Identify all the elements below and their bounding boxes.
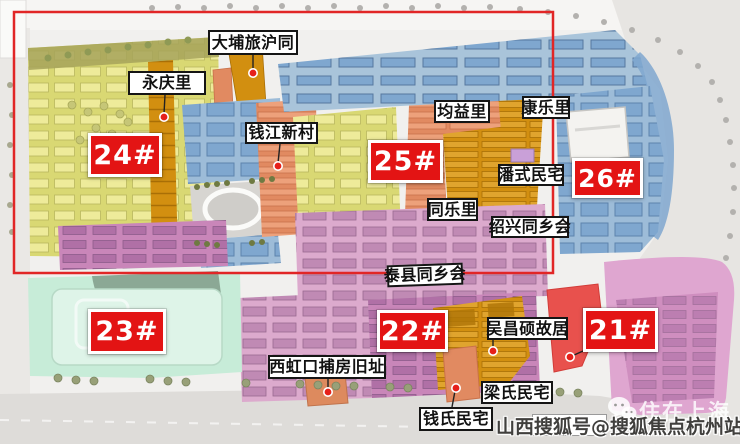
area-label-taixian-tongxianghui: 泰县同乡会 bbox=[387, 263, 464, 288]
pink-strip-under-24 bbox=[58, 220, 228, 270]
area-label-yongqingli: 永庆里 bbox=[128, 71, 206, 95]
area-label-qianjiang-xincun: 钱江新村 bbox=[245, 122, 318, 144]
area-label-shaoxing-tongxianghui: 绍兴同乡会 bbox=[491, 216, 569, 238]
area-label-tongleli: 同乐里 bbox=[427, 198, 478, 221]
block-badge-26: 26# bbox=[572, 158, 643, 198]
panshi-building bbox=[511, 149, 534, 162]
area-label-liangshi-minzhai: 梁氏民宅 bbox=[481, 381, 553, 404]
watermark-account: 山西搜狐号@搜狐焦点杭州站 bbox=[496, 412, 740, 439]
area-label-kangleli: 康乐里 bbox=[522, 96, 570, 119]
area-label-junyili: 均益里 bbox=[434, 100, 490, 123]
amber-roof-1 bbox=[444, 309, 475, 327]
area-label-xihongkou-bufang-jiuzhi: 西虹口捕房旧址 bbox=[268, 355, 386, 379]
area-label-wuchangshuo-guju: 吴昌硕故居 bbox=[487, 317, 568, 340]
area-label-dapu-luhu-tong: 大埔旅沪同 bbox=[208, 30, 298, 55]
block-badge-25: 25# bbox=[368, 140, 443, 183]
area-label-panshi-minzhai: 潘式民宅 bbox=[498, 164, 564, 186]
area-label-qianshi-minzhai: 钱氏民宅 bbox=[419, 407, 493, 431]
block-badge-21: 21# bbox=[583, 308, 658, 352]
block-badge-23: 23# bbox=[88, 309, 166, 354]
block-badge-22: 22# bbox=[377, 310, 448, 352]
site-plan-map: 大埔旅沪同 永庆里 钱江新村 均益里 康乐里 潘式民宅 同乐里 绍兴同乡会 泰县… bbox=[0, 0, 740, 444]
block-badge-24: 24# bbox=[88, 133, 162, 177]
amber-roof-2 bbox=[488, 302, 515, 318]
qianshi-building bbox=[443, 346, 480, 402]
